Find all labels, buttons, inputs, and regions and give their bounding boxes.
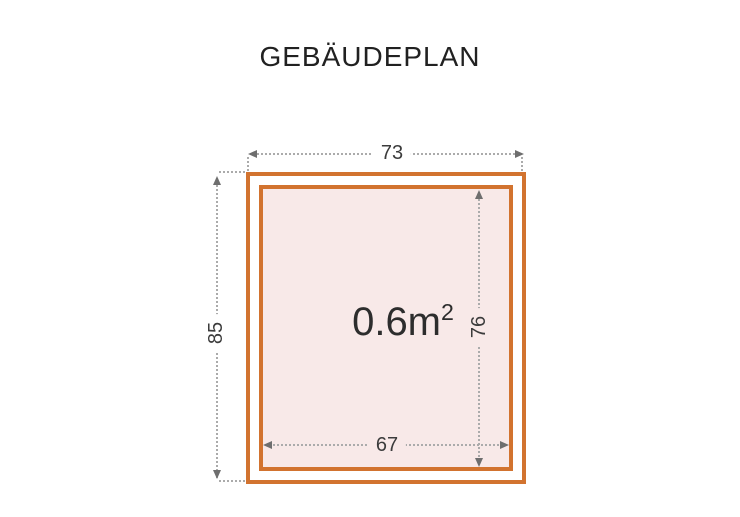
area-value: 0.6m [352,300,441,344]
left-arrowhead-icon [263,441,272,449]
right-arrowhead-icon [515,150,524,158]
left-arrowhead-icon [248,150,257,158]
inner-width-label: 67 [368,434,406,456]
extension-line [219,171,245,173]
area-exponent: 2 [441,299,454,325]
inner-height-label: 76 [468,308,490,346]
extension-line [521,157,523,171]
area-label: 0.6m2 [352,302,454,342]
page-title: GEBÄUDEPLAN [0,41,740,73]
outer-width-label: 73 [373,142,411,164]
screen: GEBÄUDEPLAN 0.6m2 73 85 [0,0,740,517]
right-arrowhead-icon [500,441,509,449]
extension-line [219,480,245,482]
outer-height-label: 85 [205,314,227,352]
extension-line [247,157,249,171]
down-arrowhead-icon [475,458,483,467]
up-arrowhead-icon [213,176,221,185]
down-arrowhead-icon [213,470,221,479]
up-arrowhead-icon [475,190,483,199]
